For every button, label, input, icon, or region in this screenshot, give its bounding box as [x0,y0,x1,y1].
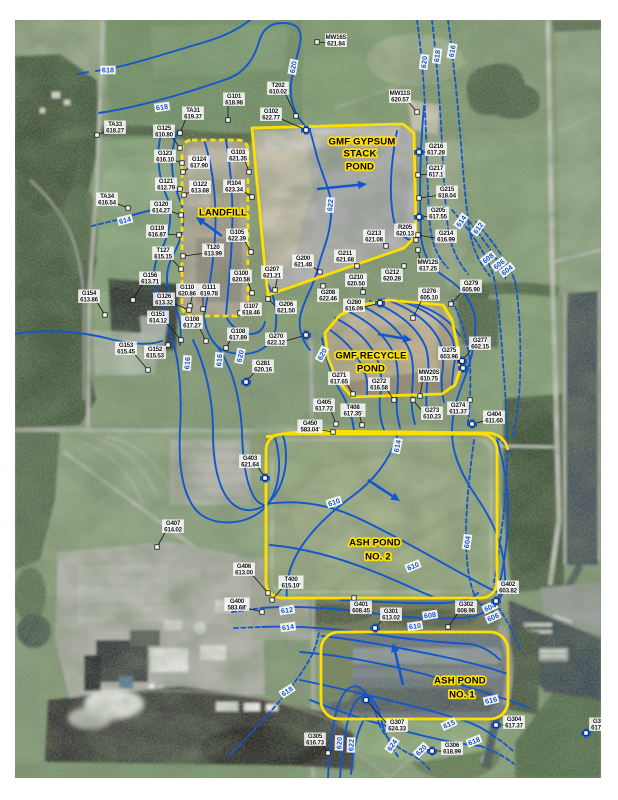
svg-text:623.34: 623.34 [225,187,243,194]
svg-text:615.53: 615.53 [146,353,164,360]
svg-text:604: 604 [462,535,473,548]
svg-text:608.96: 608.96 [457,608,475,615]
svg-text:617.28: 617.28 [427,150,445,157]
svg-text:616: 616 [182,357,192,370]
svg-text:POND: POND [346,161,374,172]
svg-text:613.32: 613.32 [155,300,173,307]
svg-text:622.12: 622.12 [267,340,285,347]
svg-text:610.80: 610.80 [155,132,173,139]
svg-text:605.90: 605.90 [462,287,480,294]
svg-text:616.87: 616.87 [148,232,166,239]
svg-text:617.72: 617.72 [315,406,333,413]
svg-text:621.48: 621.48 [294,262,312,269]
svg-text:617.1: 617.1 [429,172,444,179]
svg-text:610.23: 610.23 [423,414,441,421]
svg-text:613.86: 613.86 [80,297,98,304]
svg-text:621.35: 621.35 [229,156,247,163]
svg-text:616: 616 [214,354,224,367]
svg-text:613.68: 613.68 [191,188,209,195]
svg-text:622: 622 [325,199,335,212]
svg-text:583.68': 583.68' [228,605,248,612]
svg-text:620.57: 620.57 [391,97,409,104]
svg-text:616.58: 616.58 [370,385,388,392]
svg-text:615.45: 615.45 [117,349,135,356]
svg-text:613.99: 613.99 [204,251,222,258]
svg-text:STACK: STACK [343,148,376,159]
svg-text:621.64: 621.64 [241,462,259,469]
svg-text:614.02: 614.02 [164,527,182,534]
svg-text:618.27: 618.27 [106,128,124,135]
svg-text:614.27: 614.27 [152,208,170,215]
svg-text:617.89: 617.89 [229,335,247,342]
svg-text:583.04': 583.04' [301,427,321,434]
svg-text:603.96: 603.96 [440,354,458,361]
svg-text:618.98: 618.98 [225,100,243,107]
svg-text:621.84: 621.84 [327,41,345,48]
svg-text:617.35': 617.35' [344,411,364,418]
svg-text:605.10: 605.10 [420,295,438,302]
svg-text:618.99: 618.99 [443,749,461,756]
svg-text:617.90: 617.90 [190,163,208,170]
svg-text:621.08: 621.08 [365,237,383,244]
svg-text:619.37: 619.37 [184,114,202,121]
svg-text:621.21: 621.21 [263,273,281,280]
svg-text:612: 612 [280,605,293,616]
svg-text:NO. 2: NO. 2 [365,551,391,562]
svg-text:616.73: 616.73 [306,740,324,747]
svg-text:608.45: 608.45 [352,608,370,615]
svg-text:621.68: 621.68 [336,257,354,264]
svg-text:620.50: 620.50 [347,281,365,288]
svg-text:ASH POND: ASH POND [349,537,401,548]
svg-text:616.10: 616.10 [156,157,174,164]
svg-text:610: 610 [408,621,421,632]
svg-text:622: 622 [346,739,355,752]
svg-text:LANDFILL: LANDFILL [199,207,247,218]
svg-text:603.82: 603.82 [499,588,517,595]
svg-text:618: 618 [432,49,442,62]
svg-text:612.79: 612.79 [157,185,175,192]
svg-text:617.25: 617.25 [419,266,437,273]
svg-text:620.28: 620.28 [383,276,401,283]
svg-text:620.16: 620.16 [254,367,272,374]
svg-text:621.50: 621.50 [277,308,295,315]
svg-text:619.78: 619.78 [200,291,218,298]
svg-text:616.09: 616.09 [345,306,363,313]
svg-text:617.55: 617.55 [429,214,447,221]
svg-text:GMF GYPSUM: GMF GYPSUM [329,136,396,147]
svg-text:615.10': 615.10' [282,583,302,590]
svg-text:614.12: 614.12 [149,318,167,325]
svg-text:POND: POND [357,363,385,374]
svg-text:613.00: 613.00 [235,570,253,577]
svg-text:618: 618 [155,102,168,113]
svg-text:614: 614 [281,622,294,633]
svg-text:ASH POND: ASH POND [434,675,486,686]
svg-text:620: 620 [419,55,429,68]
svg-text:618: 618 [102,66,114,75]
svg-text:622.77: 622.77 [262,115,280,122]
svg-text:610.75: 610.75 [420,376,438,383]
svg-text:611.37: 611.37 [449,409,467,416]
svg-text:620.86: 620.86 [178,291,196,298]
svg-text:618.46: 618.46 [242,310,260,317]
svg-text:GMF RECYCLE: GMF RECYCLE [335,350,406,361]
svg-text:608: 608 [423,610,436,621]
svg-text:NO. 1: NO. 1 [449,689,475,700]
svg-text:617.65: 617.65 [330,379,348,386]
svg-text:620: 620 [334,737,343,750]
svg-text:620.13: 620.13 [396,231,414,238]
svg-text:624.33: 624.33 [388,726,406,733]
svg-text:620.58: 620.58 [232,277,250,284]
svg-text:602.15: 602.15 [471,344,489,351]
svg-text:617.37: 617.37 [505,723,523,730]
svg-text:617.27: 617.27 [183,323,201,330]
svg-text:616.99: 616.99 [437,237,455,244]
svg-text:615.15: 615.15 [154,254,172,261]
svg-text:622.39: 622.39 [228,236,246,243]
svg-text:618.04: 618.04 [438,193,456,200]
svg-text:616.54: 616.54 [98,200,116,207]
svg-text:610.02: 610.02 [269,89,287,96]
svg-text:622.46: 622.46 [319,296,337,303]
svg-text:613.71: 613.71 [141,279,159,286]
svg-text:611.60: 611.60 [485,418,503,425]
svg-text:613.02: 613.02 [382,615,400,622]
